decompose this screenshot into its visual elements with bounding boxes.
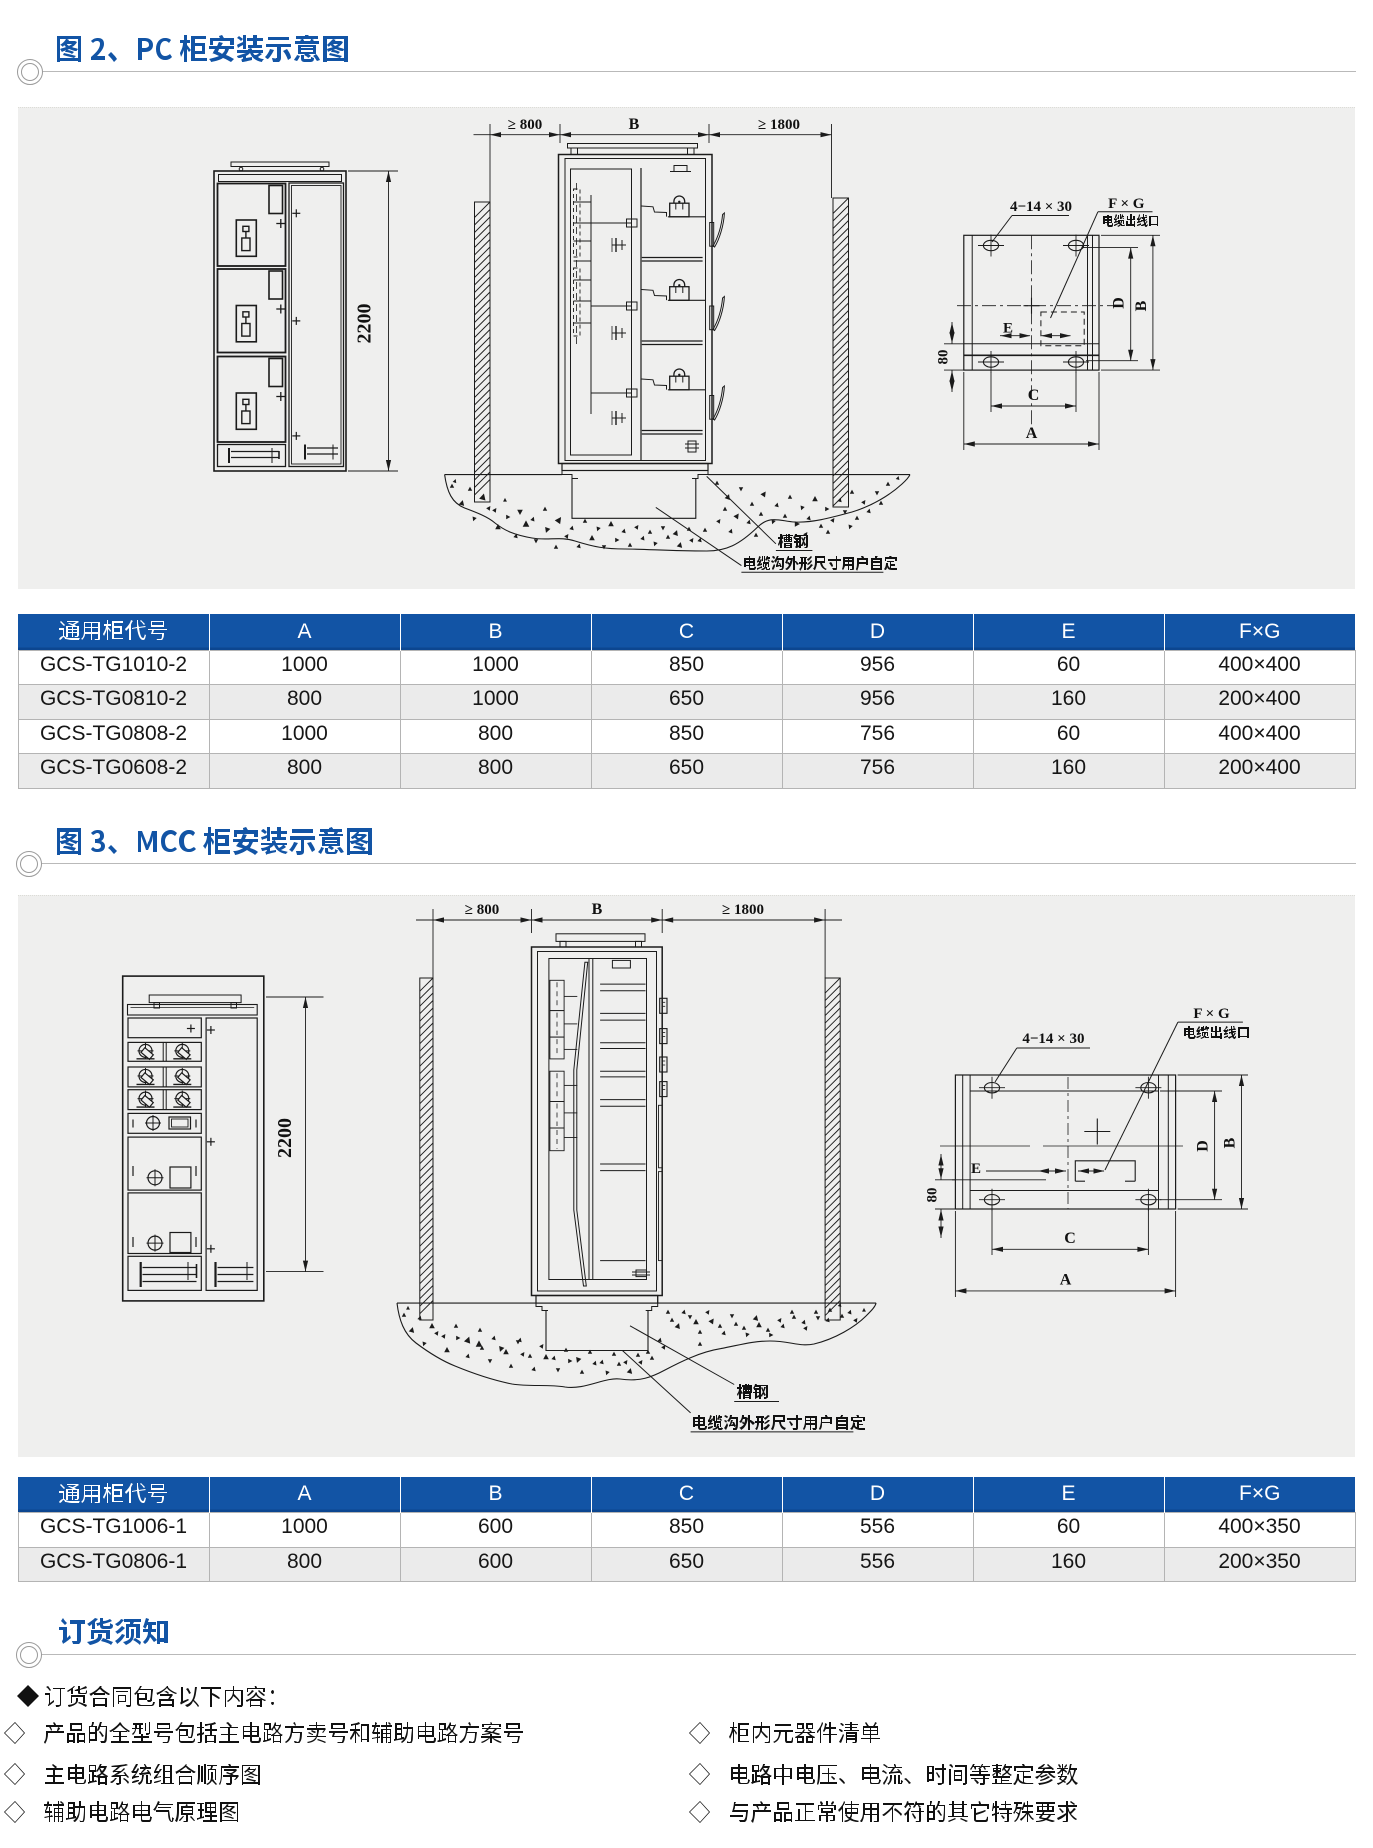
svg-text:≥ 1800: ≥ 1800: [722, 902, 764, 918]
svg-text:≥ 1800: ≥ 1800: [758, 117, 800, 133]
svg-text:4−14 × 30: 4−14 × 30: [1010, 199, 1072, 215]
svg-text:F × G: F × G: [1108, 196, 1145, 212]
svg-text:D: D: [1195, 1140, 1212, 1152]
svg-text:80: 80: [936, 350, 952, 365]
svg-text:F × G: F × G: [1193, 1006, 1230, 1022]
svg-text:80: 80: [925, 1188, 941, 1203]
svg-text:B: B: [1222, 1137, 1239, 1148]
svg-text:B: B: [592, 901, 603, 918]
svg-text:A: A: [1026, 425, 1038, 442]
svg-text:A: A: [1060, 1272, 1072, 1289]
svg-text:2200: 2200: [354, 304, 376, 344]
svg-text:B: B: [629, 116, 640, 133]
svg-text:B: B: [1133, 300, 1150, 311]
svg-text:≥ 800: ≥ 800: [465, 902, 499, 918]
svg-text:C: C: [1064, 1230, 1076, 1247]
svg-text:D: D: [1111, 297, 1128, 309]
svg-text:2200: 2200: [274, 1118, 296, 1158]
svg-text:4−14 × 30: 4−14 × 30: [1022, 1031, 1084, 1047]
svg-text:E: E: [971, 1161, 981, 1177]
svg-text:C: C: [1028, 387, 1040, 404]
svg-text:≥ 800: ≥ 800: [508, 117, 542, 133]
